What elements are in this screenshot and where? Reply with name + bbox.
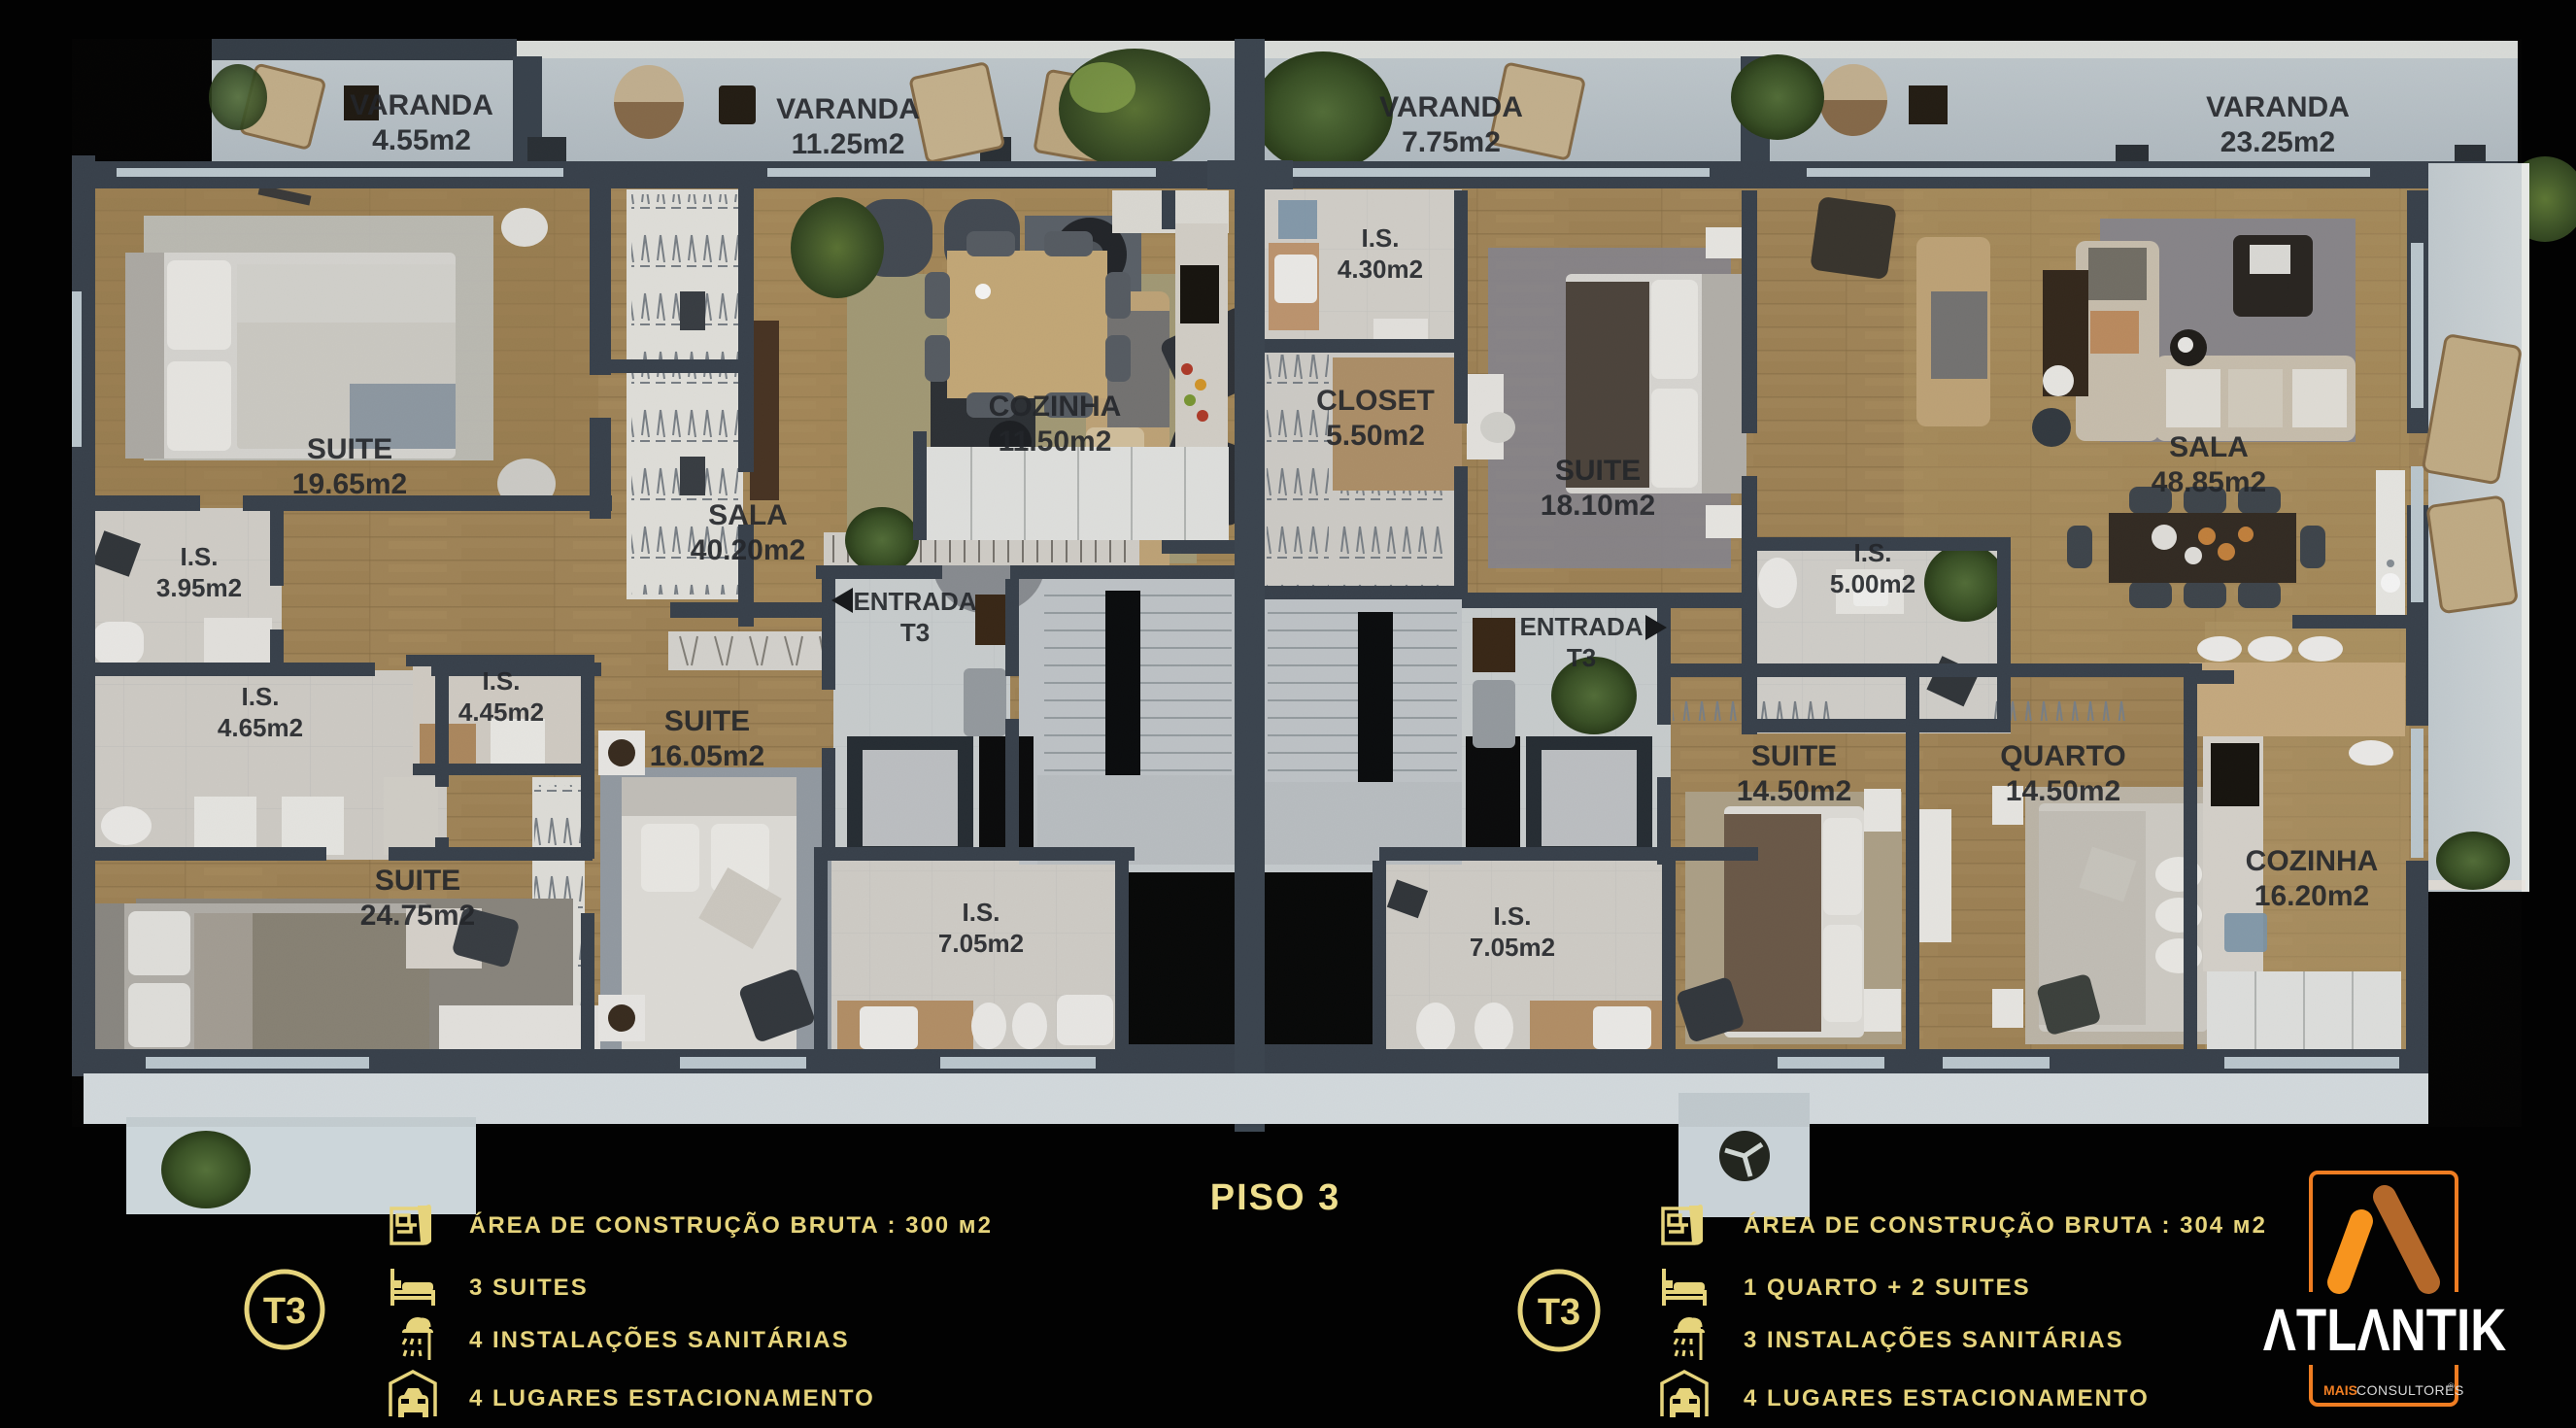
svg-text:3 SUITES: 3 SUITES [469, 1275, 589, 1301]
svg-text:ÁREA DE CONSTRUÇÃO BRUTA : 30: ÁREA DE CONSTRUÇÃO BRUTA : 304 м2 [1744, 1211, 2267, 1239]
svg-text:3 INSTALAÇÕES SANITÁRIAS: 3 INSTALAÇÕES SANITÁRIAS [1744, 1326, 2124, 1353]
svg-text:4 LUGARES ESTACIONAMENTO: 4 LUGARES ESTACIONAMENTO [469, 1385, 875, 1411]
svg-text:4 INSTALAÇÕES SANITÁRIAS: 4 INSTALAÇÕES SANITÁRIAS [469, 1326, 850, 1353]
svg-text:T3: T3 [1538, 1292, 1580, 1333]
svg-text:4 LUGARES ESTACIONAMENTO: 4 LUGARES ESTACIONAMENTO [1744, 1385, 2150, 1411]
svg-text:MAIS: MAIS [2323, 1382, 2357, 1398]
svg-text:1 QUARTO + 2 SUITES: 1 QUARTO + 2 SUITES [1744, 1275, 2031, 1301]
svg-text:PISO 3: PISO 3 [1210, 1177, 1341, 1218]
svg-text:®: ® [2448, 1381, 2455, 1391]
svg-text:T3: T3 [263, 1291, 306, 1332]
svg-text:ÁREA DE CONSTRUÇÃO BRUTA : 30: ÁREA DE CONSTRUÇÃO BRUTA : 300 м2 [469, 1211, 993, 1239]
svg-text:ΛTLΛNTIK: ΛTLΛNTIK [2263, 1297, 2507, 1363]
